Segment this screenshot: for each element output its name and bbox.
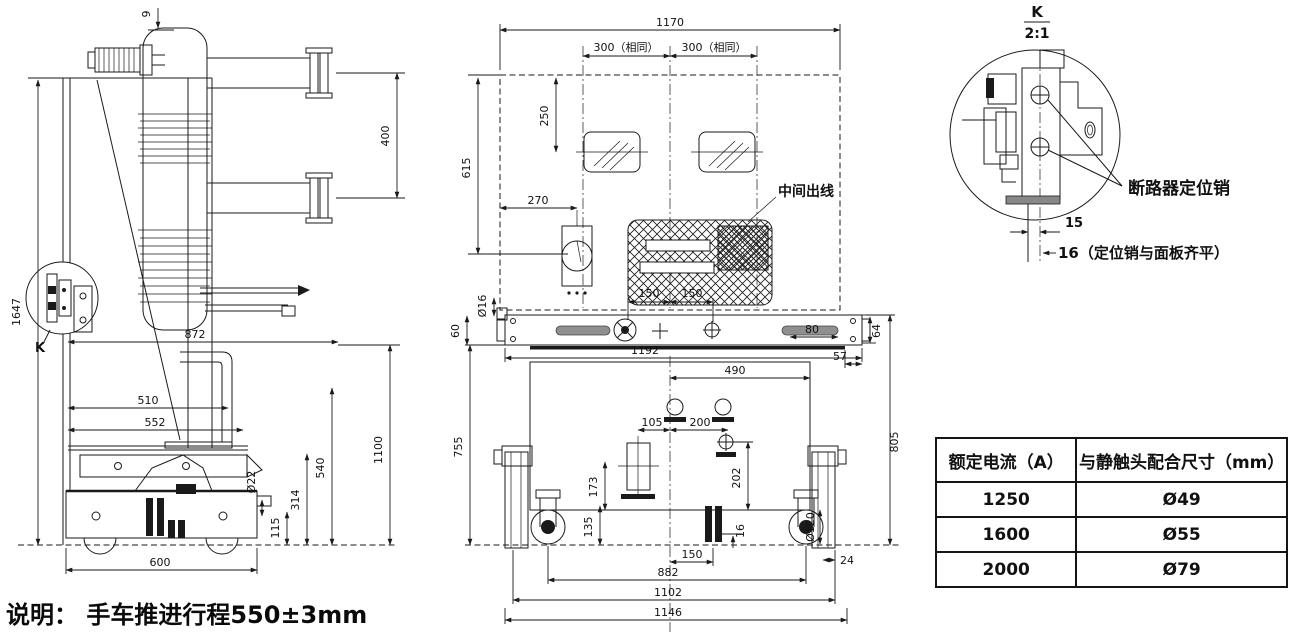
dim-1192: 1192 [631, 344, 659, 357]
current-value: 1250 [936, 482, 1076, 517]
dim-314: 314 [289, 490, 302, 511]
detail-ref-label: K [35, 341, 46, 356]
dim-d16-hole: Ø16 [476, 295, 489, 318]
dim-16-note: 16（定位销与面板齐平） [1058, 244, 1229, 262]
dim-1647: 1647 [10, 298, 23, 326]
dim-57: 57 [833, 350, 847, 363]
outlet-label: 中间出线 [778, 183, 834, 200]
dim-882: 882 [658, 566, 679, 579]
dim-1170: 1170 [656, 16, 684, 29]
dim-805: 805 [888, 432, 901, 453]
dim-250: 250 [538, 106, 551, 127]
dim-552: 552 [145, 416, 166, 429]
table-header-contact-size: 与静触头配合尺寸（mm） [1076, 438, 1287, 482]
detail-ref: K [1031, 3, 1044, 21]
side-view: K 1647 9 400 872 1100 510 552 540 314 11… [10, 8, 405, 574]
detail-scale: 2:1 [1024, 26, 1049, 42]
dim-755: 755 [452, 437, 465, 458]
contact-size-value: Ø49 [1076, 482, 1287, 517]
bellows-ribs [99, 48, 134, 72]
dim-15: 15 [1065, 216, 1083, 231]
dim-9: 9 [140, 11, 153, 18]
dim-150-bottom: 150 [682, 548, 703, 561]
dim-150-left: 150 [639, 287, 660, 300]
front-view: 1170 300（相同） 300（相同） 250 615 270 [449, 16, 901, 632]
engineering-drawing: K 1647 9 400 872 1100 510 552 540 314 11… [0, 0, 1300, 637]
dim-d22: Ø22 [245, 471, 258, 494]
dim-80: 80 [805, 323, 819, 336]
detail-k-view: K 2:1 断路器定位销 15 16（定位销与面板齐平） [950, 3, 1230, 262]
dim-115: 115 [269, 518, 282, 539]
dim-60: 60 [449, 324, 462, 338]
pin-label: 断路器定位销 [1128, 178, 1230, 199]
dim-270: 270 [528, 194, 549, 207]
dim-540: 540 [314, 458, 327, 479]
dim-1100: 1100 [372, 436, 385, 464]
dim-300-right: 300（相同） [682, 41, 747, 54]
dim-202: 202 [730, 468, 743, 489]
dim-300-left: 300（相同） [594, 41, 659, 54]
dim-510: 510 [138, 394, 159, 407]
table-row: 1250 Ø49 [936, 482, 1287, 517]
dim-600: 600 [150, 556, 171, 569]
dim-872: 872 [185, 328, 206, 341]
dim-1146: 1146 [654, 606, 682, 619]
table-row: 2000 Ø79 [936, 552, 1287, 587]
dim-1102: 1102 [654, 586, 682, 599]
current-value: 1600 [936, 517, 1076, 552]
dim-105: 105 [642, 416, 663, 429]
dim-16: 16 [734, 524, 747, 538]
note-text: 说明： 手车推进行程550±3mm [6, 595, 367, 630]
dim-173: 173 [587, 477, 600, 498]
contact-size-value: Ø79 [1076, 552, 1287, 587]
contact-size-value: Ø55 [1076, 517, 1287, 552]
dim-400: 400 [379, 126, 392, 147]
dim-64: 64 [870, 324, 883, 338]
dim-200: 200 [690, 416, 711, 429]
table-header-current: 额定电流（A） [936, 438, 1076, 482]
spec-table: 额定电流（A） 与静触头配合尺寸（mm） 1250 Ø49 1600 Ø55 2… [935, 437, 1288, 588]
dim-615: 615 [460, 158, 473, 179]
dim-d120: Ø120 [804, 512, 817, 542]
dim-490: 490 [725, 364, 746, 377]
table-row: 1600 Ø55 [936, 517, 1287, 552]
insulator-ribs-upper [138, 114, 212, 163]
dim-150-right: 150 [682, 287, 703, 300]
dim-135: 135 [582, 517, 595, 538]
current-value: 2000 [936, 552, 1076, 587]
insulator-ribs-lower [138, 230, 212, 302]
dim-24: 24 [840, 554, 854, 567]
